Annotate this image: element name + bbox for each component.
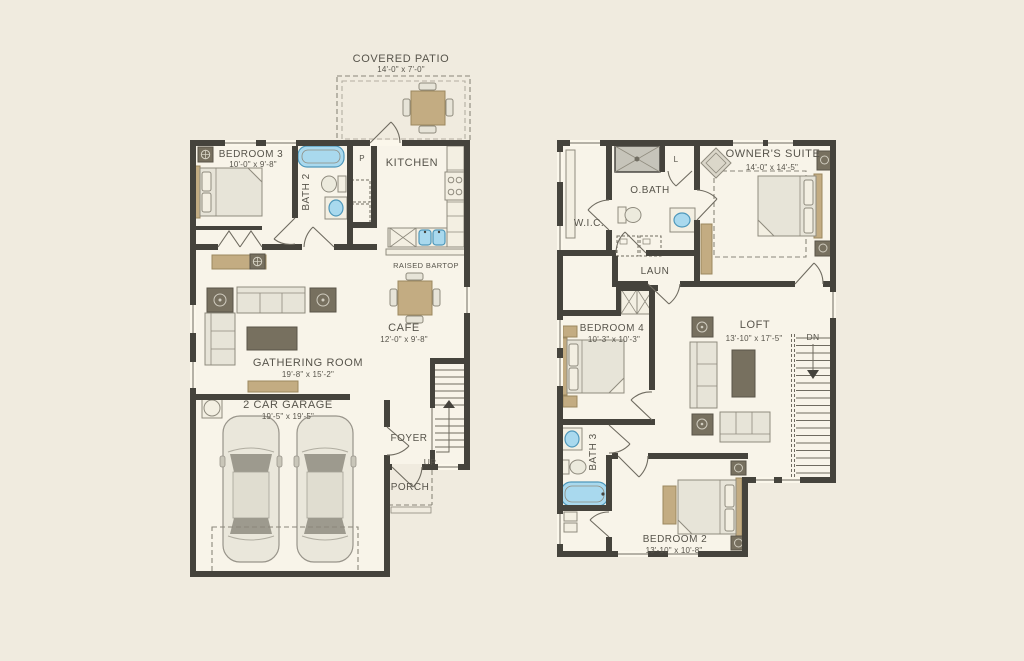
coffee-table — [247, 327, 297, 350]
garage-dims: 19'-5" x 19'-5" — [262, 412, 314, 421]
dn-label: DN — [806, 332, 819, 342]
bedroom3-dims: 10'-0" x 9'-8" — [229, 160, 277, 169]
closet-shelf — [564, 523, 577, 532]
bath3-label: BATH 3 — [588, 433, 599, 470]
bed — [758, 174, 822, 238]
owners-suite-label: OWNER'S SUITE — [726, 148, 821, 160]
closet-bifold — [621, 289, 653, 314]
sink-vanity — [562, 428, 582, 450]
sink-vanity — [325, 197, 347, 219]
bench — [248, 381, 298, 392]
sectional-chair — [205, 313, 235, 365]
nightstand — [815, 241, 831, 256]
coffee-table — [732, 350, 755, 397]
toilet — [562, 460, 586, 474]
bed — [678, 478, 742, 536]
foyer-label: FOYER — [391, 433, 428, 444]
stove — [445, 172, 464, 200]
bed — [561, 338, 624, 395]
side-table — [692, 317, 713, 337]
car-icon — [294, 416, 356, 562]
floor-plan-page: COVERED PATIO 14'-0" x 7'-0" BEDROOM 3 1… — [0, 0, 1024, 661]
bathtub — [298, 146, 344, 167]
patio-label: COVERED PATIO — [353, 53, 450, 65]
cafe-table — [390, 273, 440, 323]
bartop-label: RAISED BARTOP — [393, 261, 459, 270]
floor-plan: COVERED PATIO 14'-0" x 7'-0" BEDROOM 3 1… — [0, 0, 1024, 661]
laundry-label: LAUN — [641, 266, 670, 277]
kitchen-label: KITCHEN — [386, 157, 438, 169]
bedroom4-label: BEDROOM 4 — [580, 323, 645, 334]
cafe-dims: 12'-0" x 9'-8" — [380, 335, 428, 344]
raised-bartop-counter — [386, 249, 466, 255]
gathering-dims: 19'-8" x 15'-2" — [282, 370, 334, 379]
patio-table — [403, 83, 453, 133]
nightstand — [563, 396, 577, 407]
bedroom4-dims: 10'-3" x 10'-3" — [588, 335, 640, 344]
pantry-label: P — [359, 154, 365, 163]
dresser — [663, 486, 676, 524]
sofa-short — [720, 412, 770, 442]
side-table-left — [207, 288, 233, 312]
closet-shelf — [564, 512, 577, 521]
porch-label: PORCH — [391, 482, 430, 493]
nightstand — [563, 326, 577, 337]
wic-label: W.I.C. — [574, 218, 604, 229]
patio-dims: 14'-0" x 7'-0" — [377, 65, 425, 74]
sink-vanity — [670, 208, 695, 232]
background — [0, 0, 1024, 661]
side-table-right — [310, 288, 336, 312]
fan-icon — [250, 254, 265, 269]
dishwasher — [390, 228, 416, 247]
bedroom2-label: BEDROOM 2 — [643, 534, 708, 545]
side-table — [692, 414, 713, 435]
bedroom2-dims: 13'-10" x 10'-8" — [646, 546, 703, 555]
owners-suite-dims: 14'-0" x 14'-5" — [746, 163, 798, 172]
fan-icon — [198, 147, 213, 162]
bed — [194, 166, 262, 218]
bath2-label: BATH 2 — [301, 173, 312, 210]
up-label: UP — [424, 457, 437, 467]
cafe-label: CAFE — [388, 322, 420, 334]
toilet — [618, 207, 641, 223]
obath-label: O.BATH — [630, 185, 669, 196]
closet-wall — [194, 226, 262, 230]
loft-dims: 13'-10" x 17'-5" — [726, 334, 783, 343]
water-heater — [202, 398, 222, 418]
car-icon — [220, 416, 282, 562]
sofa — [237, 287, 305, 313]
gathering-label: GATHERING ROOM — [253, 357, 363, 369]
garage-label: 2 CAR GARAGE — [243, 399, 333, 411]
linen-label: L — [674, 155, 679, 164]
fan-table — [731, 461, 746, 475]
bedroom3-label: BEDROOM 3 — [219, 149, 284, 160]
shower — [615, 146, 660, 172]
loft-label: LOFT — [740, 319, 771, 331]
toilet — [322, 176, 347, 192]
dresser — [701, 224, 712, 274]
sofa-long — [690, 342, 717, 408]
